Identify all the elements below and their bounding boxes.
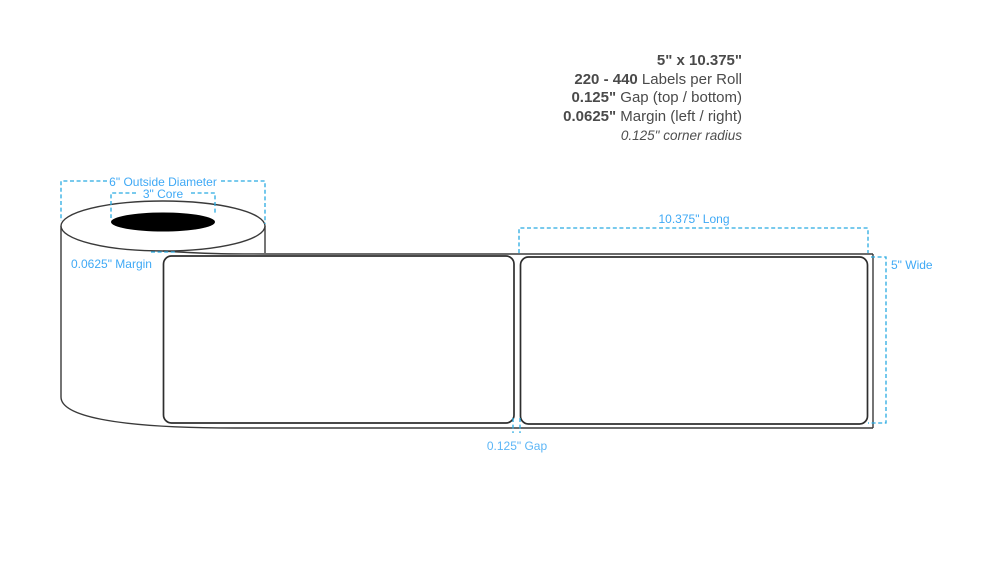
gap-annotation: 0.125" Gap	[487, 439, 548, 453]
margin-annotation: 0.0625" Margin	[71, 257, 152, 271]
label-roll-spec-page: 5" x 10.375" 220 - 440 Labels per Roll 0…	[0, 0, 985, 564]
width-bracket	[868, 257, 886, 423]
width-annotation: 5" Wide	[891, 258, 933, 272]
label-2	[521, 257, 868, 424]
length-annotation: 10.375" Long	[659, 212, 730, 226]
length-bracket	[519, 228, 868, 253]
core-annotation: 3" Core	[143, 187, 184, 201]
liner-top-edge	[163, 251, 873, 254]
gap-ticks	[513, 418, 520, 433]
roll-diagram: 6" Outside Diameter 3" Core 0.0625" Marg…	[0, 0, 985, 564]
label-1	[164, 256, 515, 423]
roll-core	[111, 213, 215, 232]
